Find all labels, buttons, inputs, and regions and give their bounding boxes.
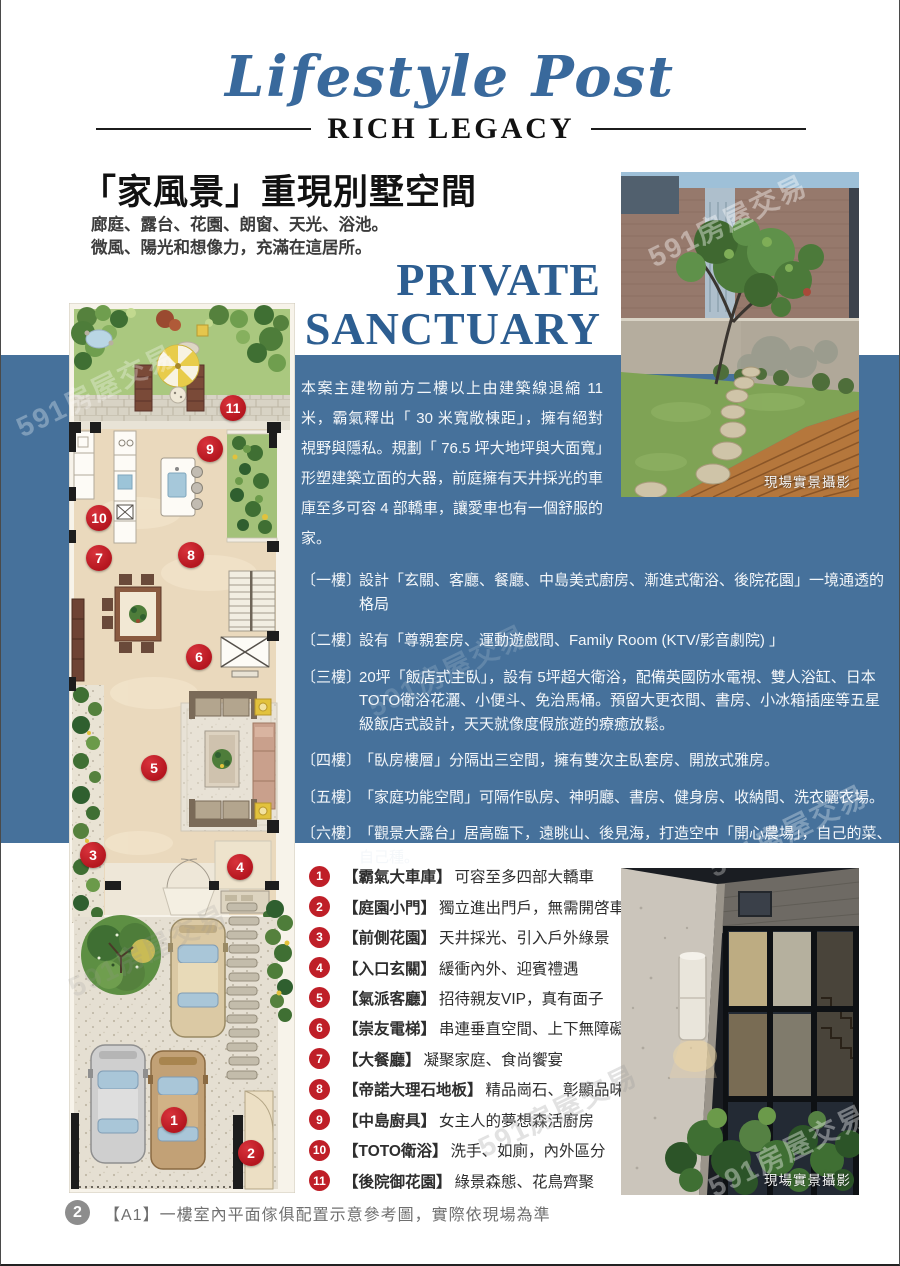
legend-item: 2【庭園小門】獨立進出門戶，無需開啓車庫門 — [309, 891, 614, 921]
legend-item: 9【中島廚具】女主人的夢想森活廚房 — [309, 1105, 614, 1135]
plan-marker-5: 5 — [141, 755, 167, 781]
floor-label: 〔四樓〕 — [301, 749, 359, 773]
floor-text: 「家庭功能空間」可隔作臥房、神明廳、書房、健身房、收納間、洗衣曬衣場。 — [359, 786, 895, 810]
legend-number-badge: 7 — [309, 1048, 330, 1069]
plan-marker-7: 7 — [86, 545, 112, 571]
sofa-top — [189, 691, 257, 719]
legend-title: 【氣派客廳】 — [343, 987, 436, 1009]
legend-item: 8【帝諾大理石地板】精品崗石、彰顯品味 — [309, 1074, 614, 1104]
legend-number-badge: 6 — [309, 1018, 330, 1039]
sofa-bottom — [189, 799, 257, 827]
plan-legend: 1【霸氣大車庫】可容至多四部大轎車 2【庭園小門】獨立進出門戶，無需開啓車庫門 … — [309, 861, 614, 1196]
garden-photo: 現場實景攝影 — [621, 172, 859, 497]
legend-desc: 女主人的夢想森活廚房 — [439, 1109, 594, 1131]
legend-title: 【大餐廳】 — [343, 1048, 421, 1070]
plan-marker-6: 6 — [186, 644, 212, 670]
right-rule — [591, 128, 806, 130]
legend-item: 4【入口玄關】緩衝內外、迎賓禮遇 — [309, 952, 614, 982]
courtyard-photo-art — [621, 868, 859, 1195]
magazine-subtitle-row: RICH LEGACY — [96, 112, 806, 146]
floor-text: 20坪「飯店式主臥」，設有 5坪超大衛浴，配備英國防水電視、雙人浴缸、日本TOT… — [359, 666, 895, 737]
plan-marker-11: 11 — [220, 395, 246, 421]
legend-number-badge: 3 — [309, 927, 330, 948]
floor-label: 〔五樓〕 — [301, 786, 359, 810]
legend-item: 1【霸氣大車庫】可容至多四部大轎車 — [309, 861, 614, 891]
legend-title: 【入口玄關】 — [343, 957, 436, 979]
sofa-right — [253, 723, 275, 809]
photo-caption: 現場實景攝影 — [764, 471, 851, 491]
legend-item: 11【後院御花園】綠景森態、花鳥齊聚 — [309, 1165, 614, 1195]
photo-caption: 現場實景攝影 — [764, 1169, 851, 1189]
legend-number-badge: 9 — [309, 1109, 330, 1130]
legend-number-badge: 11 — [309, 1170, 330, 1191]
floor-row: 〔三樓〕20坪「飯店式主臥」，設有 5坪超大衛浴，配備英國防水電視、雙人浴缸、日… — [301, 666, 895, 737]
legend-number-badge: 10 — [309, 1140, 330, 1161]
courtyard-photo: 現場實景攝影 — [621, 868, 859, 1195]
legend-desc: 緩衝內外、迎賓禮遇 — [439, 957, 579, 979]
english-heading-line-2: SANCTUARY — [256, 304, 601, 353]
magazine-script-title: Lifestyle Post — [1, 44, 899, 110]
legend-desc: 綠景森態、花鳥齊聚 — [455, 1170, 595, 1192]
legend-number-badge: 4 — [309, 957, 330, 978]
legend-title: 【中島廚具】 — [343, 1109, 436, 1131]
left-rule — [96, 128, 311, 130]
legend-item: 7【大餐廳】凝聚家庭、食尚饗宴 — [309, 1044, 614, 1074]
floor-label: 〔一樓〕 — [301, 569, 359, 616]
subtitle-line-1: 廊庭、露台、花園、朗窗、天光、浴池。 — [91, 214, 388, 237]
legend-item: 3【前側花園】天井採光、引入戶外綠景 — [309, 922, 614, 952]
legend-title: 【霸氣大車庫】 — [343, 865, 452, 887]
car-beige — [168, 919, 228, 1037]
legend-title: 【後院御花園】 — [343, 1170, 452, 1192]
floor-plan: 1 2 3 4 5 6 7 8 9 10 11 — [69, 303, 295, 1193]
garden-photo-art — [621, 172, 859, 497]
legend-title: 【前側花園】 — [343, 926, 436, 948]
plan-marker-9: 9 — [197, 436, 223, 462]
brochure-page: Lifestyle Post RICH LEGACY 「家風景」重現別墅空間 廊… — [0, 0, 900, 1266]
magazine-subtitle: RICH LEGACY — [327, 112, 574, 146]
plan-marker-8: 8 — [178, 542, 204, 568]
english-heading-line-1: PRIVATE — [256, 255, 601, 304]
legend-desc: 招待親友VIP，真有面子 — [439, 987, 603, 1009]
plan-marker-2: 2 — [238, 1140, 264, 1166]
description-paragraph: 本案主建物前方二樓以上由建築線退縮 11 米，霸氣釋出「 30 米寬敞棟距」，擁… — [301, 374, 603, 554]
legend-item: 5【氣派客廳】招待親友VIP，真有面子 — [309, 983, 614, 1013]
footer-number-badge: 2 — [65, 1200, 90, 1225]
legend-desc: 凝聚家庭、食尚饗宴 — [424, 1048, 564, 1070]
legend-title: 【庭園小門】 — [343, 896, 436, 918]
legend-number-badge: 5 — [309, 987, 330, 1008]
plan-marker-10: 10 — [86, 505, 112, 531]
floor-label: 〔三樓〕 — [301, 666, 359, 737]
floor-label: 〔二樓〕 — [301, 629, 359, 653]
floor-row: 〔五樓〕「家庭功能空間」可隔作臥房、神明廳、書房、健身房、收納間、洗衣曬衣場。 — [301, 786, 895, 810]
plan-marker-1: 1 — [161, 1107, 187, 1133]
plan-marker-4: 4 — [227, 854, 253, 880]
car-gray — [88, 1045, 148, 1163]
english-heading: PRIVATE SANCTUARY — [256, 255, 601, 353]
floor-text: 「臥房樓層」分隔出三空間，擁有雙次主臥套房、開放式雅房。 — [359, 749, 895, 773]
legend-number-badge: 8 — [309, 1079, 330, 1100]
floor-row: 〔二樓〕設有「尊親套房、運動遊戲間、Family Room (KTV/影音劇院)… — [301, 629, 895, 653]
legend-desc: 可容至多四部大轎車 — [455, 865, 595, 887]
legend-title: 【崇友電梯】 — [343, 1017, 436, 1039]
footer-text: 【A1】一樓室內平面傢俱配置示意參考圖，實際依現場為準 — [104, 1201, 551, 1225]
floor-text: 設有「尊親套房、運動遊戲間、Family Room (KTV/影音劇院) 」 — [359, 629, 895, 653]
legend-item: 6【崇友電梯】串連垂直空間、上下無障礙 — [309, 1013, 614, 1043]
legend-desc: 精品崗石、彰顯品味 — [486, 1078, 626, 1100]
floor-text: 設計「玄關、客廳、餐廳、中島美式廚房、漸進式衛浴、後院花園」一境通透的格局 — [359, 569, 895, 616]
page-title: 「家風景」重現別墅空間 — [81, 164, 477, 215]
plan-marker-3: 3 — [80, 842, 106, 868]
legend-title: 【TOTO衛浴】 — [343, 1139, 448, 1161]
legend-desc: 洗手、如廁，內外區分 — [451, 1139, 606, 1161]
legend-item: 10【TOTO衛浴】洗手、如廁，內外區分 — [309, 1135, 614, 1165]
legend-title: 【帝諾大理石地板】 — [343, 1078, 483, 1100]
page-subtitle: 廊庭、露台、花園、朗窗、天光、浴池。 微風、陽光和想像力，充滿在這居所。 — [91, 214, 388, 260]
floor-description-list: 〔一樓〕設計「玄關、客廳、餐廳、中島美式廚房、漸進式衛浴、後院花園」一境通透的格… — [301, 569, 895, 882]
legend-number-badge: 1 — [309, 866, 330, 887]
legend-number-badge: 2 — [309, 896, 330, 917]
floor-row: 〔四樓〕「臥房樓層」分隔出三空間，擁有雙次主臥套房、開放式雅房。 — [301, 749, 895, 773]
floor-row: 〔一樓〕設計「玄關、客廳、餐廳、中島美式廚房、漸進式衛浴、後院花園」一境通透的格… — [301, 569, 895, 616]
floor-plan-illustration — [69, 303, 295, 1193]
front-tree — [81, 915, 161, 995]
legend-desc: 串連垂直空間、上下無障礙 — [439, 1017, 625, 1039]
legend-desc: 天井採光、引入戶外綠景 — [439, 926, 610, 948]
footer-note: 2 【A1】一樓室內平面傢俱配置示意參考圖，實際依現場為準 — [65, 1200, 551, 1225]
